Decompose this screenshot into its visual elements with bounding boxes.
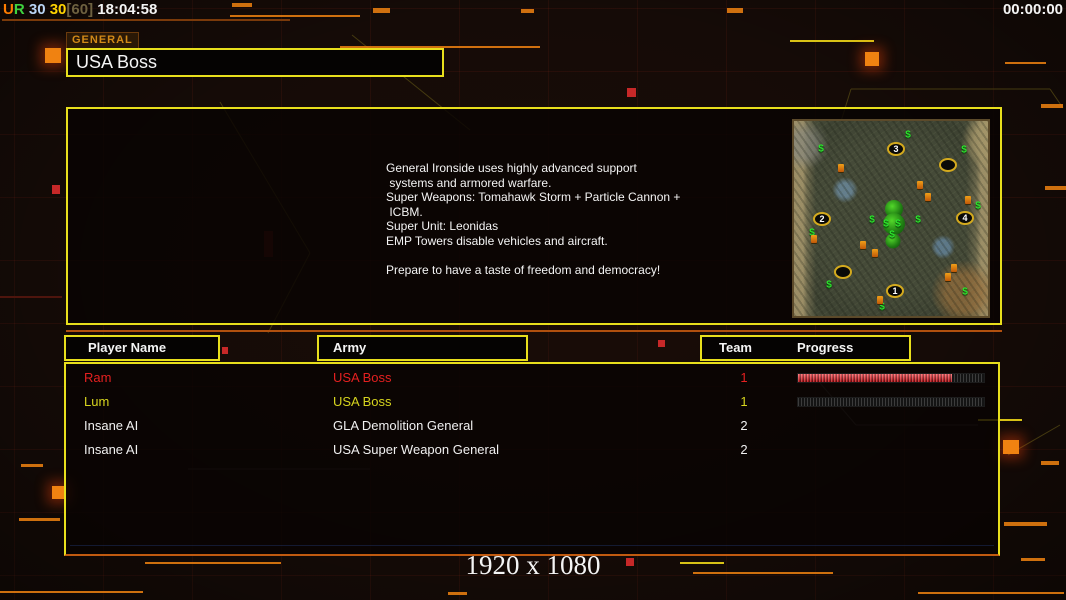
general-name-title: USA Boss <box>66 48 444 77</box>
player-team: 1 <box>729 390 759 414</box>
counter-segment: 18:04:58 <box>93 1 157 18</box>
empty-slot-marker <box>834 265 852 279</box>
general-description: General Ironside uses highly advanced su… <box>386 161 741 277</box>
counter-segment: [60] <box>66 1 93 18</box>
oil-derrick-icon <box>872 249 878 257</box>
panel-separator-line <box>66 330 1002 332</box>
decor-dash <box>0 591 143 593</box>
money-icon: $ <box>818 144 824 155</box>
column-header-team: Team <box>719 337 752 359</box>
oil-derrick-icon <box>838 164 844 172</box>
decor-dash <box>727 8 743 13</box>
decor-orange-square <box>1003 440 1019 454</box>
money-icon: $ <box>961 145 967 156</box>
decor-dash <box>232 3 252 7</box>
decor-red-square <box>52 185 60 194</box>
money-icon: $ <box>962 287 968 298</box>
oil-derrick-icon <box>965 196 971 204</box>
player-progress-bar <box>797 373 985 383</box>
money-icon: $ <box>895 219 901 230</box>
decor-red-square <box>627 88 636 97</box>
oil-derrick-icon <box>917 181 923 189</box>
player-name: Ram <box>84 366 111 390</box>
empty-slot-marker <box>939 158 957 172</box>
spawn-marker: 4 <box>956 211 974 225</box>
money-icon: $ <box>883 219 889 230</box>
decor-dash <box>1041 461 1059 465</box>
column-header-army: Army <box>317 335 528 361</box>
player-table: Ram USA Boss 1 Lum USA Boss 1 Insane AI … <box>64 362 1000 556</box>
oil-derrick-icon <box>811 235 817 243</box>
spawn-marker: 2 <box>813 212 831 226</box>
oil-derrick-icon <box>945 273 951 281</box>
money-icon: $ <box>869 215 875 226</box>
counter-underline <box>2 19 290 21</box>
player-team: 1 <box>729 366 759 390</box>
player-progress-bar <box>797 397 985 407</box>
fps-counter: UR 30 30[60] 18:04:58 <box>3 1 157 18</box>
spawn-marker: 3 <box>887 142 905 156</box>
player-row: Insane AI GLA Demolition General 2 <box>66 414 998 438</box>
decor-dash <box>230 15 360 17</box>
player-name: Insane AI <box>84 438 138 462</box>
decor-dash <box>1004 522 1047 526</box>
decor-orange-square <box>865 52 879 66</box>
money-icon: $ <box>915 215 921 226</box>
decor-dash <box>21 464 43 467</box>
player-army: USA Boss <box>333 390 392 414</box>
spawn-marker: 1 <box>886 284 904 298</box>
player-team: 2 <box>729 438 759 462</box>
progress-bar-fill <box>798 374 952 382</box>
decor-dark-red-square <box>0 296 62 298</box>
player-row: Lum USA Boss 1 <box>66 390 998 414</box>
decor-dash <box>521 9 534 13</box>
counter-segment: 30 <box>46 1 67 18</box>
decor-dash <box>19 518 60 521</box>
decor-dash <box>448 592 467 595</box>
oil-derrick-icon <box>860 241 866 249</box>
player-army: USA Super Weapon General <box>333 438 499 462</box>
counter-segment: 30 <box>25 1 46 18</box>
decor-red-square <box>658 340 665 347</box>
oil-derrick-icon <box>951 264 957 272</box>
player-name: Lum <box>84 390 109 414</box>
counter-segment: R <box>14 1 25 18</box>
player-row: Ram USA Boss 1 <box>66 366 998 390</box>
column-header-team-progress: Team Progress <box>700 335 911 361</box>
player-name: Insane AI <box>84 414 138 438</box>
decor-dash <box>1041 104 1063 108</box>
money-icon: $ <box>826 280 832 291</box>
player-row: Insane AI USA Super Weapon General 2 <box>66 438 998 462</box>
column-header-player-name: Player Name <box>64 335 220 361</box>
decor-dash <box>373 8 390 13</box>
decor-dash <box>918 592 1064 594</box>
loading-screen: UR 30 30[60] 18:04:58 00:00:00 GENERAL U… <box>0 0 1066 600</box>
player-team: 2 <box>729 414 759 438</box>
decor-dash <box>1005 62 1046 64</box>
money-icon: $ <box>905 130 911 141</box>
player-army: USA Boss <box>333 366 392 390</box>
decor-orange-square <box>45 48 61 63</box>
match-timer: 00:00:00 <box>1003 1 1063 18</box>
column-header-progress: Progress <box>797 337 853 359</box>
resolution-label: 1920 x 1080 <box>0 550 1066 581</box>
decor-red-square <box>222 347 228 354</box>
map-preview: $$$$$$$$$$$$$1234 <box>792 119 990 318</box>
money-icon: $ <box>975 201 981 212</box>
oil-derrick-icon <box>925 193 931 201</box>
player-army: GLA Demolition General <box>333 414 473 438</box>
decor-dash <box>1045 186 1066 190</box>
oil-derrick-icon <box>877 296 883 304</box>
decor-dash-yellow <box>790 40 874 42</box>
money-icon: $ <box>889 230 895 241</box>
counter-segment: U <box>3 1 14 18</box>
